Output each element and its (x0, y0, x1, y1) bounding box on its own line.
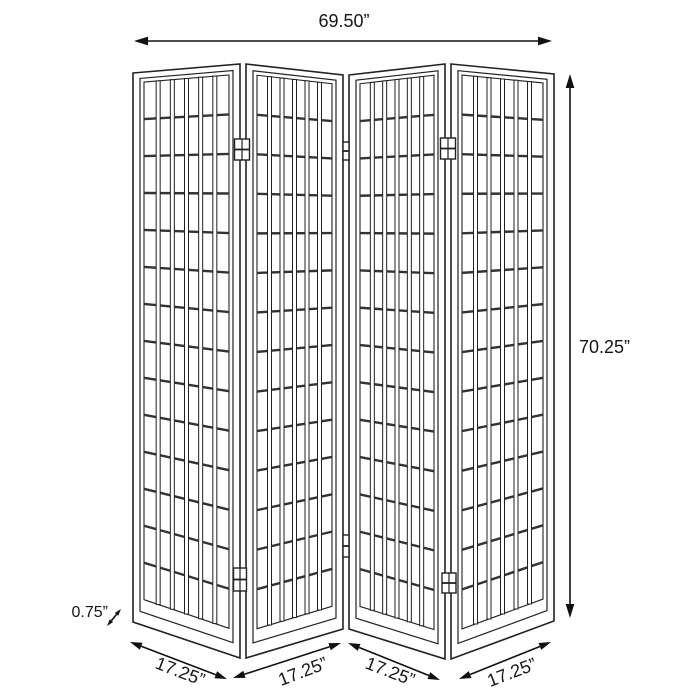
screen-panel-2 (246, 64, 343, 658)
hinge-1-2-bottom (234, 568, 247, 591)
hinge-3-4-top (441, 138, 456, 159)
hinge-2-3-bottom (343, 535, 349, 557)
thickness-dimension-arrow (107, 609, 121, 626)
room-divider-drawing: 69.50” 70.25” 0.75” 17.25” 17.25” 17.25”… (0, 0, 700, 700)
hinge-1-2-top (235, 139, 250, 160)
product-dimension-diagram: 69.50” 70.25” 0.75” 17.25” 17.25” 17.25”… (0, 0, 700, 700)
panel-width-label-4: 17.25” (484, 654, 539, 691)
width-dimension-arrow (134, 37, 552, 46)
height-dimension-label: 70.25” (579, 337, 630, 357)
width-dimension-label: 69.50” (318, 11, 369, 31)
panel-width-label-2: 17.25” (275, 653, 330, 690)
screen-panel-3 (349, 64, 445, 659)
panel-width-label-3: 17.25” (363, 653, 418, 690)
thickness-dimension-label: 0.75” (72, 604, 108, 621)
screen-panel-4 (451, 64, 554, 659)
screen-panel-1 (133, 64, 240, 658)
height-dimension-arrow (566, 74, 575, 618)
hinge-2-3-top (343, 142, 349, 160)
hinge-3-4-bottom (442, 573, 456, 593)
panel-width-label-1: 17.25” (153, 653, 208, 690)
screen-drawing-layer (107, 37, 574, 680)
